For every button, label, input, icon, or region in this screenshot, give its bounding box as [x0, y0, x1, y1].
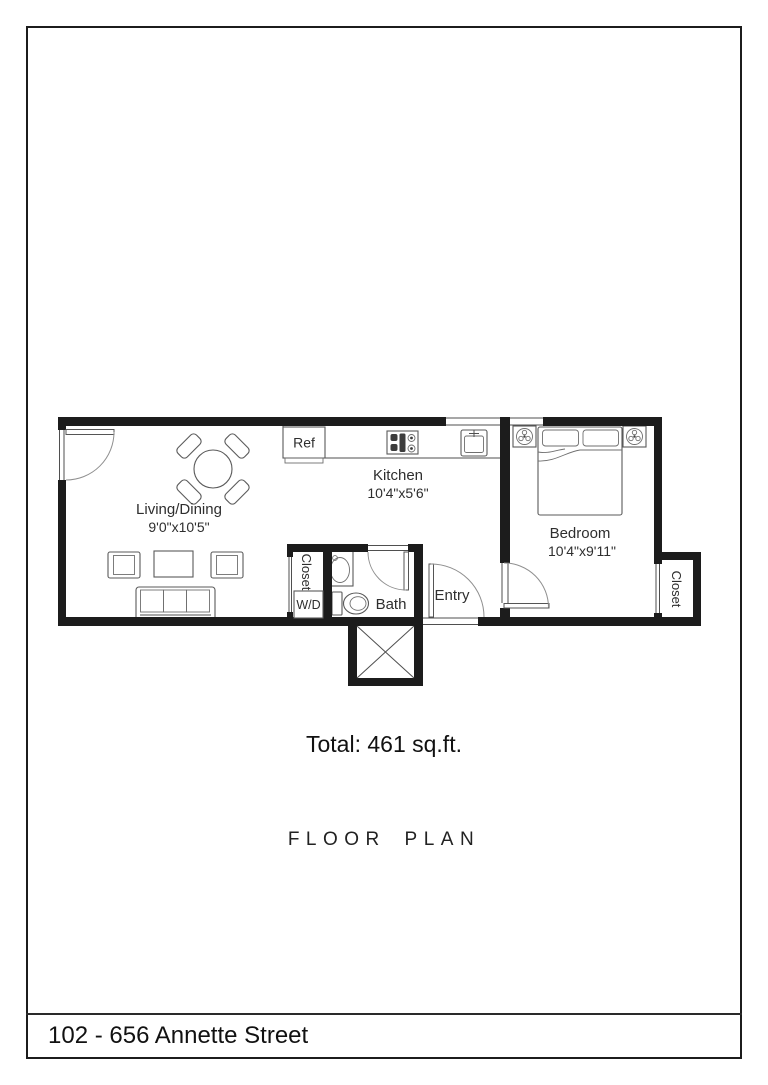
- living-room-furniture: [108, 551, 243, 622]
- room-label-kitchen: Kitchen: [373, 467, 423, 484]
- hatched-shaft: [357, 626, 414, 678]
- wall-segment: [543, 417, 662, 426]
- wall-segment: [478, 617, 701, 626]
- toilet-tank: [332, 592, 342, 615]
- wall-segment: [58, 417, 446, 426]
- toilet-bowl: [344, 593, 369, 614]
- wall-segment: [414, 626, 423, 678]
- bed: [538, 427, 622, 515]
- dining-table: [194, 450, 232, 488]
- wall-segment: [348, 678, 423, 686]
- wall-segment: [408, 544, 423, 552]
- wall-segment: [58, 426, 66, 430]
- bath-door-leaf: [404, 552, 409, 590]
- wall-segment: [58, 617, 423, 626]
- balcony-door-opening: [60, 430, 65, 480]
- bedroom-window: [510, 418, 543, 425]
- bedroom-closet-slider: [656, 564, 660, 613]
- page: Living/Dining 9'0"x10'5" Kitchen 10'4"x5…: [0, 0, 768, 1085]
- coffee-table: [154, 551, 193, 577]
- wall-segment: [323, 552, 332, 617]
- room-dims-kitchen: 10'4"x5'6": [367, 485, 428, 501]
- dining-table-set: [175, 432, 251, 506]
- wall-segment: [654, 426, 662, 558]
- washer-dryer-label: W/D: [296, 598, 320, 612]
- bath-fixtures: [327, 550, 369, 615]
- kitchen-sink: [461, 430, 487, 456]
- floor-plan-drawing: Living/Dining 9'0"x10'5" Kitchen 10'4"x5…: [0, 0, 768, 1085]
- entry-door-leaf: [429, 564, 434, 617]
- floor-plan-title: FLOOR PLAN: [0, 829, 768, 851]
- room-label-bath: Bath: [376, 596, 407, 613]
- wall-segment: [654, 552, 701, 560]
- room-dims-bedroom: 10'4"x9'11": [548, 543, 616, 559]
- wall-segment: [58, 480, 66, 626]
- wall-segment: [500, 426, 510, 563]
- room-label-bedroom-closet: Closet: [669, 571, 684, 608]
- total-area-text: Total: 461 sq.ft.: [0, 731, 768, 758]
- wall-segment: [500, 417, 510, 426]
- room-label-bedroom: Bedroom: [550, 525, 611, 542]
- living-room-door-leaf: [66, 430, 114, 435]
- wall-segment: [500, 608, 510, 617]
- room-label-hall-closet: Closet: [299, 554, 314, 591]
- door-jamb: [654, 613, 662, 617]
- room-dims-living-dining: 9'0"x10'5": [148, 519, 209, 535]
- bedroom-door-opening: [502, 563, 508, 603]
- wall-segment: [414, 552, 423, 617]
- wall-segment: [287, 544, 368, 552]
- entry-door-opening: [423, 618, 478, 625]
- bath-door-swing: [368, 552, 406, 590]
- door-jamb: [287, 552, 293, 557]
- kitchen-window: [446, 418, 500, 425]
- room-label-entry: Entry: [434, 587, 470, 604]
- door-jamb: [654, 560, 662, 564]
- hall-closet-slider: [289, 557, 292, 612]
- room-label-living-dining: Living/Dining: [136, 501, 222, 518]
- wall-segment: [348, 626, 357, 678]
- bedroom-furniture: [513, 426, 646, 515]
- footer-divider: [26, 1013, 742, 1015]
- stove: [387, 431, 418, 454]
- bath-door-opening: [368, 546, 408, 551]
- sofa: [136, 587, 215, 622]
- living-room-door-swing: [66, 432, 114, 480]
- footer-address: 102 - 656 Annette Street: [48, 1022, 308, 1050]
- wall-segment: [693, 560, 701, 617]
- door-jamb: [287, 612, 293, 617]
- bedroom-door-swing: [504, 563, 549, 608]
- bedroom-door-leaf: [504, 604, 549, 609]
- refrigerator-label: Ref: [293, 435, 315, 451]
